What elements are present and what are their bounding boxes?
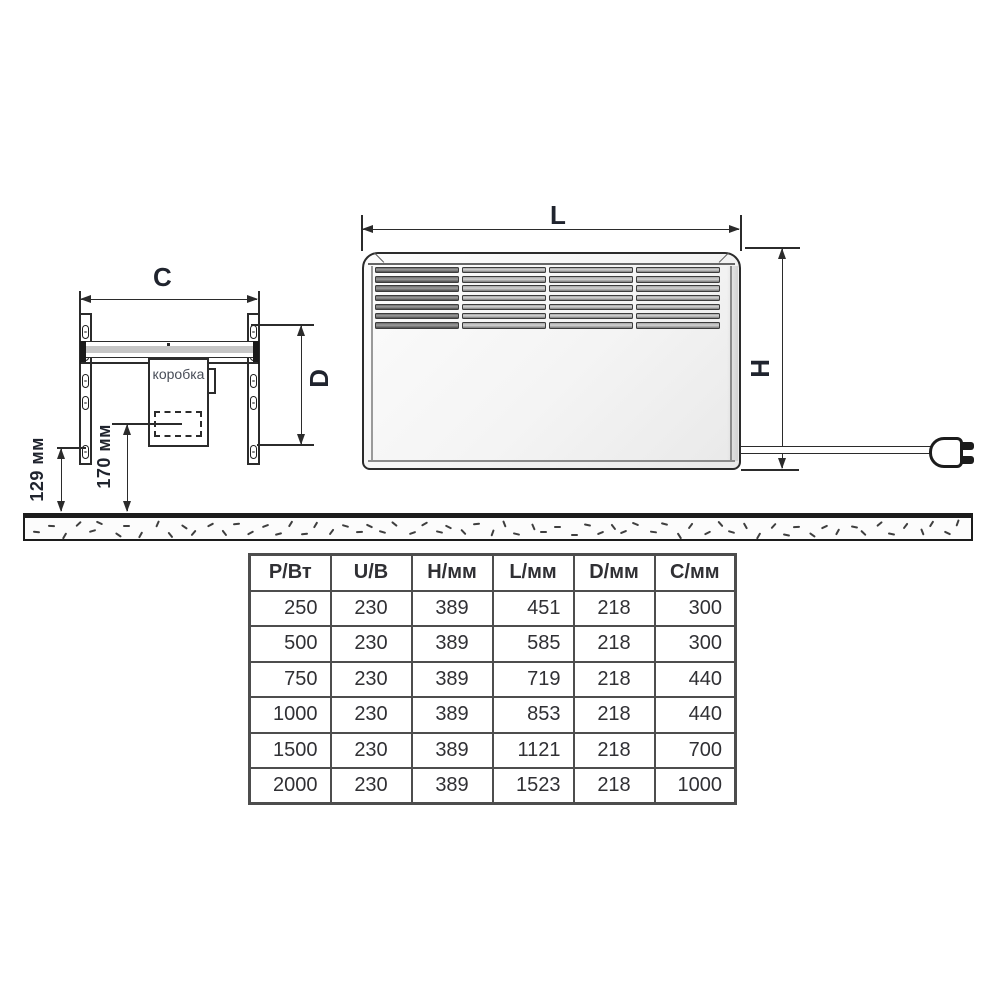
spec-cell: 1500 [250, 733, 331, 769]
grille-slat [462, 322, 546, 328]
floor-hatch-mark [728, 530, 735, 534]
dim-170mm-line [127, 425, 128, 511]
spec-cell: 451 [493, 591, 574, 627]
keyhole-slot [250, 374, 257, 388]
crossbar-center-dot [167, 343, 170, 346]
keyhole-slot [82, 374, 89, 388]
grille-slat [549, 276, 633, 282]
spec-cell: 1000 [250, 697, 331, 733]
floor-hatch-mark [436, 531, 443, 534]
floor-hatch-mark [181, 524, 188, 529]
spec-cell: 218 [574, 626, 655, 662]
spec-cell: 300 [655, 591, 736, 627]
floor-hatch-band [23, 513, 973, 541]
dim-D-extension-bottom [257, 444, 314, 446]
floor-hatch-mark [379, 530, 386, 534]
spec-cell: 218 [574, 733, 655, 769]
floor-hatch-mark [274, 532, 281, 535]
floor-hatch-mark [288, 521, 293, 528]
grille-slat [636, 322, 720, 328]
spec-cell: 389 [412, 733, 493, 769]
spec-col-header: D/мм [574, 555, 655, 591]
keyhole-slot [82, 396, 89, 410]
floor-hatch-mark [903, 523, 909, 530]
spec-table-row: 200023038915232181000 [250, 768, 736, 804]
grille-slat [462, 304, 546, 310]
junction-box-label: коробка [148, 366, 209, 382]
spec-cell: 218 [574, 768, 655, 804]
floor-hatch-mark [156, 520, 160, 527]
dim-129mm-label: 129 мм [27, 437, 48, 502]
floor-hatch-mark [928, 521, 933, 528]
floor-hatch-mark [677, 532, 682, 539]
spec-col-header: Н/мм [412, 555, 493, 591]
floor-hatch-mark [233, 523, 240, 525]
spec-cell: 230 [331, 626, 412, 662]
grille-slat [462, 285, 546, 291]
spec-cell: 853 [493, 697, 574, 733]
floor-hatch-mark [247, 531, 254, 536]
grille-slat [375, 313, 459, 319]
spec-col-header: L/мм [493, 555, 574, 591]
dim-170mm-label: 170 мм [94, 424, 115, 489]
dim-L-extension-right [740, 215, 742, 251]
plug-prong [961, 442, 974, 450]
spec-cell: 440 [655, 662, 736, 698]
spec-col-header: Р/Вт [250, 555, 331, 591]
spec-cell: 2000 [250, 768, 331, 804]
spec-table-body: 2502303894512183005002303895852183007502… [250, 591, 736, 804]
power-cord [741, 446, 931, 454]
crossbar-end-notch [253, 341, 259, 364]
grille-slat [636, 285, 720, 291]
plug-prong [961, 456, 974, 464]
spec-cell: 750 [250, 662, 331, 698]
floor-hatch-mark [421, 522, 428, 527]
grille-group [462, 267, 546, 333]
grille-slat [375, 304, 459, 310]
floor-hatch-mark [409, 531, 416, 535]
floor-hatch-mark [887, 532, 894, 535]
grille-slat [549, 322, 633, 328]
spec-table-row: 750230389719218440 [250, 662, 736, 698]
top-rim-line [368, 263, 735, 265]
floor-hatch-mark [300, 532, 307, 535]
floor-hatch-mark [688, 523, 694, 530]
spec-table: Р/ВтU/ВН/ммL/ммD/ммС/мм 2502303894512183… [248, 553, 737, 805]
floor-hatch-mark [944, 531, 951, 536]
floor-hatch-mark [756, 532, 761, 539]
spec-cell: 250 [250, 591, 331, 627]
floor-hatch-mark [75, 521, 81, 527]
spec-cell: 389 [412, 626, 493, 662]
floor-hatch-mark [920, 528, 924, 535]
power-plug [929, 437, 963, 468]
floor-hatch-mark [262, 524, 269, 528]
left-edge-line [371, 266, 373, 461]
dim-H-label: H [745, 359, 776, 378]
floor-hatch-mark [650, 531, 657, 534]
spec-cell: 585 [493, 626, 574, 662]
floor-hatch-mark [96, 521, 103, 526]
grille-slat [549, 295, 633, 301]
grille-slat [636, 276, 720, 282]
floor-hatch-mark [955, 520, 959, 527]
floor-hatch-mark [366, 524, 373, 529]
floor-hatch-mark [660, 522, 667, 525]
floor-hatch-mark [88, 529, 95, 533]
grille-slat [462, 295, 546, 301]
floor-hatch-mark [610, 524, 616, 531]
spec-cell: 389 [412, 662, 493, 698]
floor-hatch-mark [835, 528, 840, 535]
spec-cell: 500 [250, 626, 331, 662]
floor-hatch-mark [473, 523, 480, 526]
floor-hatch-mark [743, 522, 748, 529]
floor-hatch-mark [531, 523, 535, 530]
floor-hatch-mark [770, 523, 776, 529]
bracket-rail-right [247, 313, 260, 465]
spec-cell: 719 [493, 662, 574, 698]
floor-hatch-mark [584, 523, 591, 526]
grille-slat [375, 276, 459, 282]
dim-H-extension-top [745, 247, 800, 249]
floor-hatch-mark [168, 531, 174, 538]
bottom-edge-line [368, 460, 735, 462]
spec-table-head-row: Р/ВтU/ВН/ммL/ммD/ммС/мм [250, 555, 736, 591]
spec-cell: 700 [655, 733, 736, 769]
keyhole-slot [250, 396, 257, 410]
floor-hatch-mark [461, 529, 467, 535]
grille-slat [549, 304, 633, 310]
spec-cell: 389 [412, 697, 493, 733]
grille-slat [462, 276, 546, 282]
spec-cell: 230 [331, 697, 412, 733]
spec-cell: 230 [331, 591, 412, 627]
floor-hatch-mark [793, 526, 800, 528]
spec-cell: 389 [412, 768, 493, 804]
floor-hatch-mark [820, 525, 827, 530]
dim-129mm-line [61, 449, 62, 511]
grille-slat [549, 267, 633, 273]
spec-cell: 218 [574, 697, 655, 733]
grille-slat [462, 267, 546, 273]
grille-slat [375, 322, 459, 328]
grille-slat [375, 267, 459, 273]
floor-hatch-mark [571, 534, 578, 536]
spec-col-header: U/В [331, 555, 412, 591]
grille-group [636, 267, 720, 333]
floor-hatch-mark [138, 532, 143, 539]
dim-D-line [301, 326, 302, 444]
spec-cell: 218 [574, 662, 655, 698]
grille-slat [636, 313, 720, 319]
spec-cell: 230 [331, 768, 412, 804]
crossbar-end-notch [80, 341, 86, 364]
keyhole-slot [250, 445, 257, 459]
grille-slat [636, 295, 720, 301]
floor-hatch-mark [851, 525, 858, 528]
dim-L-label: L [550, 200, 566, 231]
floor-hatch-mark [513, 532, 520, 535]
grille-slat [549, 285, 633, 291]
keyhole-slot [82, 325, 89, 339]
dim-D-label: D [304, 369, 335, 388]
spec-cell: 1121 [493, 733, 574, 769]
dim-H-extension-bottom [741, 469, 799, 471]
spec-cell: 300 [655, 626, 736, 662]
floor-hatch-mark [329, 529, 335, 536]
floor-hatch-mark [876, 521, 883, 527]
spec-cell: 230 [331, 662, 412, 698]
convector-dimension-drawing: C коробка D 129 мм 170 мм L [0, 0, 1000, 1000]
spec-table-row: 500230389585218300 [250, 626, 736, 662]
floor-hatch-mark [540, 531, 547, 533]
spec-table-row: 250230389451218300 [250, 591, 736, 627]
dim-C-line [81, 299, 257, 300]
right-edge-line [730, 266, 732, 461]
floor-hatch-mark [632, 521, 639, 525]
floor-hatch-mark [502, 520, 506, 527]
floor-hatch-mark [115, 532, 122, 537]
spec-cell: 218 [574, 591, 655, 627]
spec-cell: 1523 [493, 768, 574, 804]
grille-slat [375, 285, 459, 291]
spec-cell: 440 [655, 697, 736, 733]
floor-hatch-mark [191, 529, 197, 535]
spec-cell: 389 [412, 591, 493, 627]
floor-hatch-mark [554, 526, 561, 528]
floor-hatch-mark [123, 525, 130, 527]
floor-hatch-mark [445, 525, 452, 530]
spec-cell: 1000 [655, 768, 736, 804]
floor-hatch-mark [48, 525, 55, 527]
floor-hatch-mark [391, 521, 398, 527]
grille-slat [375, 295, 459, 301]
floor-hatch-mark [597, 531, 604, 535]
floor-hatch-mark [207, 522, 214, 527]
right-edge-shade [727, 266, 738, 461]
floor-hatch-mark [704, 530, 711, 535]
spec-cell: 230 [331, 733, 412, 769]
keyhole-slot [250, 325, 257, 339]
grille-slat [636, 267, 720, 273]
floor-hatch-mark [860, 530, 866, 536]
floor-hatch-mark [33, 531, 40, 534]
dim-L-extension-left [361, 215, 363, 251]
bracket-rail-left [79, 313, 92, 465]
floor-hatch-mark [620, 530, 627, 534]
grille-group [549, 267, 633, 333]
spec-table-row: 15002303891121218700 [250, 733, 736, 769]
floor-hatch-mark [809, 532, 816, 538]
floor-hatch-mark [717, 520, 723, 526]
grille-slat [549, 313, 633, 319]
grille-group [375, 267, 459, 333]
spec-col-header: С/мм [655, 555, 736, 591]
grille-slat [462, 313, 546, 319]
dim-H-line [782, 249, 783, 468]
floor-hatch-mark [222, 529, 228, 536]
floor-hatch-mark [491, 529, 495, 536]
floor-hatch-mark [783, 533, 790, 536]
grille-slat [636, 304, 720, 310]
dim-C-label: C [153, 262, 172, 293]
spec-table-row: 1000230389853218440 [250, 697, 736, 733]
floor-hatch-mark [342, 524, 349, 528]
floor-hatch-mark [356, 531, 363, 533]
floor-hatch-mark [62, 532, 67, 539]
floor-hatch-mark [313, 522, 318, 529]
